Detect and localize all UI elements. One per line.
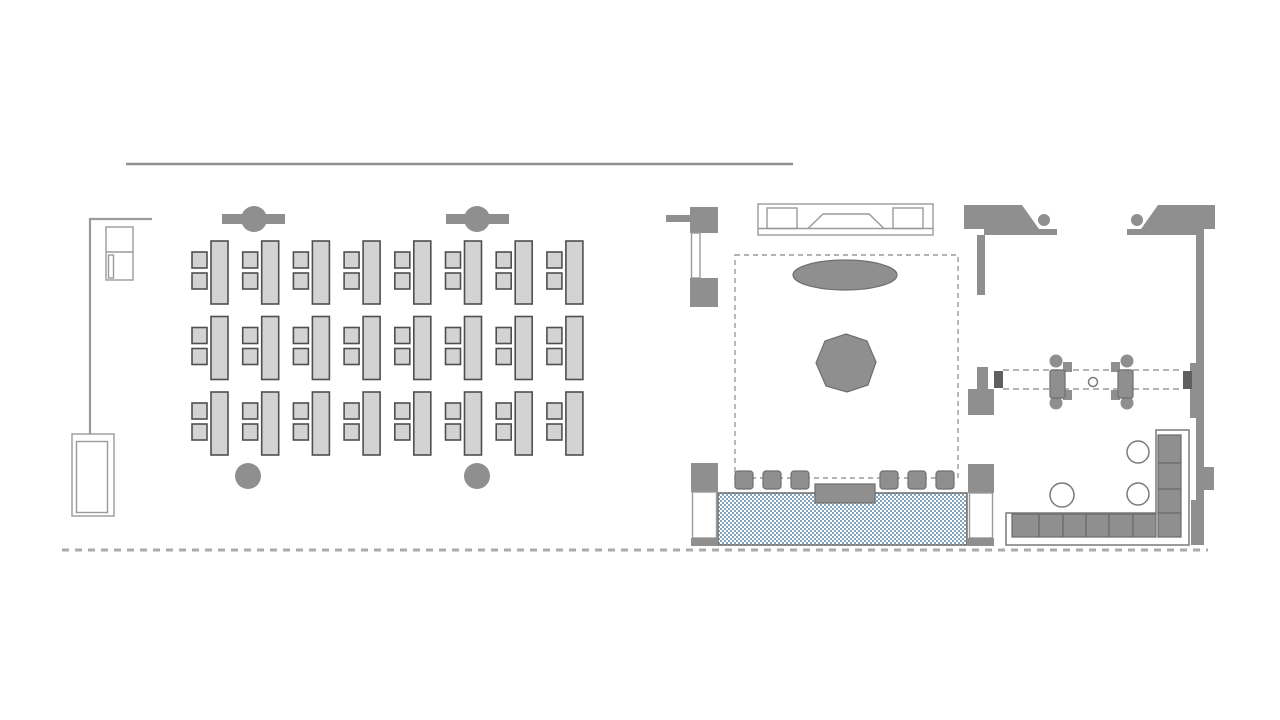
left-bottom-doorway bbox=[691, 463, 718, 546]
wall-pier bbox=[968, 464, 994, 493]
desk-unit bbox=[446, 241, 482, 304]
column-with-beam bbox=[446, 206, 509, 232]
door-leaf bbox=[692, 233, 701, 278]
desk-unit bbox=[344, 241, 380, 304]
lectern bbox=[72, 434, 114, 516]
desk-unit bbox=[293, 241, 329, 304]
wall-pier bbox=[690, 207, 718, 233]
bistro-corridor bbox=[968, 355, 1192, 416]
desk-unit bbox=[293, 317, 329, 380]
left-wall-doorway bbox=[666, 207, 718, 307]
classroom-area bbox=[72, 206, 583, 516]
bistro-table bbox=[1111, 355, 1134, 410]
desk-unit bbox=[395, 392, 431, 455]
round-side-table bbox=[1127, 441, 1149, 463]
desk-unit bbox=[446, 392, 482, 455]
desk-unit bbox=[395, 317, 431, 380]
round-side-table bbox=[1050, 483, 1074, 507]
wall-pier bbox=[977, 367, 988, 390]
door-jamb bbox=[1183, 371, 1192, 389]
desk-unit bbox=[496, 241, 532, 304]
desk-unit bbox=[192, 241, 228, 304]
floor-plan-drawing bbox=[0, 0, 1280, 720]
desk-unit bbox=[243, 241, 279, 304]
wall-stub bbox=[977, 235, 985, 295]
counter-stool bbox=[1131, 214, 1143, 226]
desk-unit bbox=[547, 392, 583, 455]
door-leaf bbox=[970, 493, 993, 538]
door-leaf bbox=[693, 492, 717, 538]
desk-unit bbox=[344, 317, 380, 380]
bistro-table bbox=[1050, 355, 1073, 410]
wall-pier bbox=[1204, 467, 1214, 490]
desk-unit bbox=[496, 317, 532, 380]
sectional-sofa bbox=[1006, 430, 1189, 545]
desk-unit bbox=[547, 317, 583, 380]
column-plain bbox=[235, 463, 261, 489]
desk-unit bbox=[496, 392, 532, 455]
lounge-area bbox=[666, 204, 994, 546]
right-wall bbox=[1190, 229, 1214, 545]
wall-pier bbox=[691, 463, 718, 492]
right-bottom-doorway bbox=[968, 464, 994, 546]
floor-marker bbox=[1089, 378, 1098, 387]
octagon-table bbox=[816, 334, 876, 392]
cafe-area bbox=[964, 205, 1215, 545]
stage-console bbox=[758, 204, 933, 235]
column-plain bbox=[464, 463, 490, 489]
column-with-beam bbox=[222, 206, 285, 232]
classroom-corner-wall bbox=[90, 219, 152, 434]
desk-unit bbox=[192, 317, 228, 380]
round-side-table bbox=[1127, 483, 1149, 505]
desk-unit bbox=[243, 317, 279, 380]
oval-rug bbox=[793, 260, 897, 290]
desk-unit bbox=[344, 392, 380, 455]
wall-pier bbox=[968, 389, 994, 415]
coffee-table bbox=[815, 484, 875, 503]
desk-grid bbox=[192, 241, 583, 455]
desk-unit bbox=[293, 392, 329, 455]
floor-plan-canvas bbox=[0, 0, 1280, 720]
service-counter-left bbox=[964, 205, 1057, 295]
desk-unit bbox=[395, 241, 431, 304]
wall-pier bbox=[690, 278, 718, 307]
desk-unit bbox=[243, 392, 279, 455]
desk-unit bbox=[547, 241, 583, 304]
door-jamb bbox=[994, 371, 1003, 388]
desk-unit bbox=[446, 317, 482, 380]
wall-cabinet bbox=[106, 227, 133, 280]
counter-stool bbox=[1038, 214, 1050, 226]
desk-unit bbox=[192, 392, 228, 455]
